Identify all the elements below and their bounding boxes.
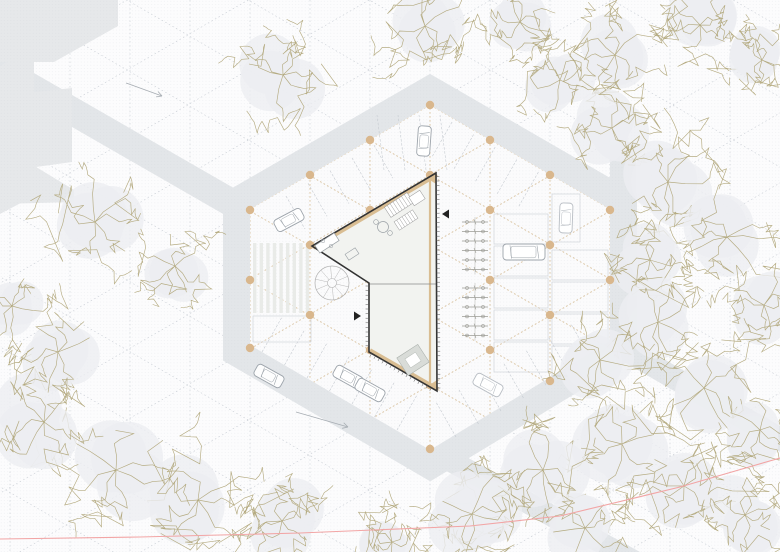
lattice-node — [306, 311, 314, 319]
car-symbol — [559, 203, 573, 233]
lattice-node — [486, 206, 494, 214]
tree-canopy — [530, 57, 579, 106]
lattice-node — [546, 241, 554, 249]
lattice-node — [546, 171, 554, 179]
lattice-node — [606, 206, 614, 214]
tree-canopy — [57, 193, 123, 259]
lattice-node — [246, 276, 254, 284]
lattice-node — [606, 276, 614, 284]
lattice-node — [486, 136, 494, 144]
lattice-node — [246, 344, 254, 352]
lattice-node — [306, 171, 314, 179]
car-symbol — [416, 126, 431, 157]
lattice-node — [546, 311, 554, 319]
lattice-node — [486, 276, 494, 284]
lattice-node — [426, 101, 434, 109]
tree-canopy — [97, 449, 169, 521]
lattice-node — [486, 346, 494, 354]
car-symbol — [503, 244, 545, 260]
lattice-node — [366, 136, 374, 144]
lattice-node — [246, 206, 254, 214]
site-plan-drawing — [0, 0, 780, 552]
tree-canopy — [577, 89, 635, 147]
striped-deck — [253, 243, 309, 313]
lattice-node — [426, 445, 434, 453]
tree-canopy — [729, 34, 778, 83]
tree-canopy — [581, 404, 653, 476]
site-plan-document — [0, 0, 780, 552]
tree-canopy — [576, 329, 634, 387]
tree-canopy — [619, 286, 679, 346]
